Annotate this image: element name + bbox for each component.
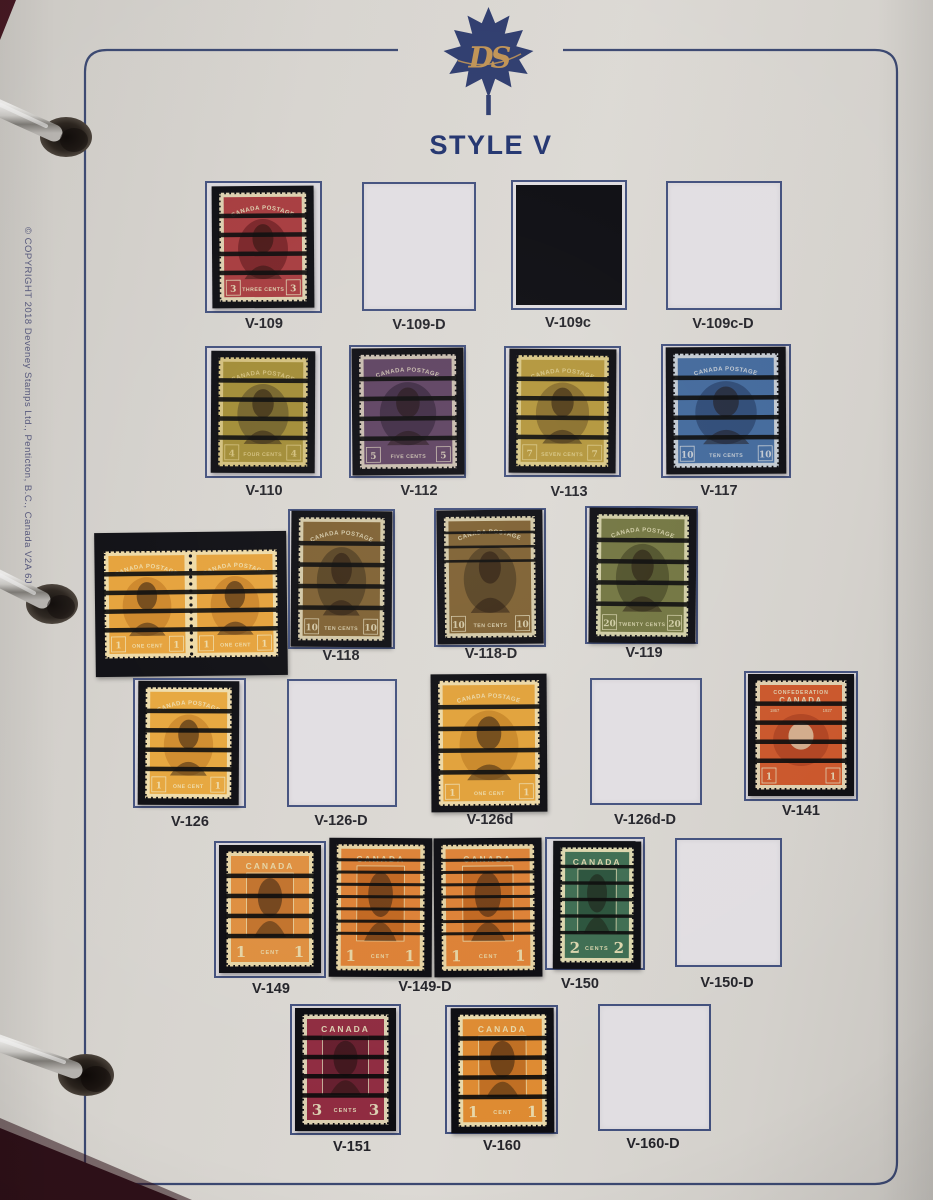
caption-V-126: V-126 (171, 814, 209, 830)
caption-V-117: V-117 (700, 483, 737, 499)
svg-text:4: 4 (291, 450, 297, 460)
svg-text:7: 7 (527, 449, 533, 459)
svg-text:5: 5 (370, 452, 376, 462)
stamp-mount-V-150: CANADA22CENTS (553, 841, 641, 969)
caption-V-126-D: V-126-D (314, 813, 367, 829)
stamp-V-150: CANADA22CENTS (559, 846, 635, 964)
svg-text:ONE CENT: ONE CENT (220, 642, 251, 648)
stamp-mount-V-109: CANADA POSTAGE33THREE CENTS (212, 186, 315, 309)
stamp-coil-pair: CANADA POSTAGE11ONE CENTCANADA POSTAGE11… (102, 548, 279, 660)
logo-monogram: DS (468, 40, 511, 74)
caption-V-126d: V-126d (467, 812, 514, 828)
stamp-mount-V-126d: CANADA POSTAGE11ONE CENT (431, 674, 548, 813)
svg-text:CENTS: CENTS (585, 946, 609, 952)
stamp-V-126d: CANADA POSTAGE11ONE CENT (437, 679, 542, 808)
stamp-mount-V-117: CANADA POSTAGE1010TEN CENTS (666, 347, 787, 475)
printed-box-V-109-D (362, 182, 476, 311)
svg-text:1: 1 (515, 947, 526, 965)
svg-text:1: 1 (215, 782, 221, 792)
stamp-V-149: CANADA11CENT (225, 850, 315, 968)
svg-text:1: 1 (449, 789, 455, 799)
stamp-V-160: CANADA11CENT (457, 1013, 549, 1128)
stamp-mount-V-149-D-right: CANADA11CENT (434, 838, 543, 978)
svg-text:1: 1 (156, 781, 162, 791)
svg-text:TEN CENTS: TEN CENTS (474, 623, 508, 629)
stamp-mount-V-119: CANADA POSTAGE2020TWENTY CENTS (588, 508, 696, 644)
printed-box-V-150-D (675, 838, 782, 967)
svg-text:10: 10 (681, 451, 694, 461)
svg-text:10: 10 (452, 621, 465, 631)
svg-text:2: 2 (570, 939, 581, 957)
svg-text:TEN CENTS: TEN CENTS (709, 453, 743, 459)
stamp-V-149-D-right: CANADA11CENT (440, 843, 537, 973)
svg-text:ONE CENT: ONE CENT (132, 643, 163, 649)
svg-text:3: 3 (230, 285, 236, 295)
svg-text:FIVE CENTS: FIVE CENTS (391, 454, 427, 460)
svg-text:10: 10 (516, 620, 529, 630)
svg-text:20: 20 (668, 620, 681, 630)
svg-text:10: 10 (305, 623, 318, 633)
svg-text:1: 1 (523, 788, 529, 798)
black-box-V-109c (511, 180, 627, 310)
svg-text:ONE CENT: ONE CENT (474, 791, 505, 797)
svg-text:CANADA: CANADA (246, 861, 295, 871)
svg-text:FOUR CENTS: FOUR CENTS (243, 452, 282, 458)
caption-V-109: V-109 (245, 316, 283, 332)
svg-text:1: 1 (203, 640, 209, 650)
stamp-mount-V-118-D: CANADA POSTAGE1010TEN CENTS (436, 509, 543, 644)
svg-text:1: 1 (294, 943, 304, 961)
caption-V-149-D: V-149-D (398, 979, 451, 995)
caption-V-149: V-149 (252, 981, 290, 997)
caption-V-150: V-150 (561, 976, 599, 992)
stamp-V-117: CANADA POSTAGE1010TEN CENTS (672, 352, 781, 470)
printed-box-V-109c-D (666, 181, 782, 310)
stamp-V-112: CANADA POSTAGE55FIVE CENTS (357, 353, 458, 471)
svg-text:7: 7 (592, 450, 598, 460)
caption-V-112: V-112 (400, 483, 437, 499)
stamp-V-119: CANADA POSTAGE2020TWENTY CENTS (594, 513, 690, 639)
stamp-mount-V-112: CANADA POSTAGE55FIVE CENTS (351, 348, 464, 476)
stamp-V-118: CANADA POSTAGE1010TEN CENTS (297, 516, 387, 643)
maple-leaf-stem (486, 95, 491, 115)
caption-V-160: V-160 (483, 1138, 521, 1154)
stamp-mount-V-151: CANADA33CENTS (295, 1008, 396, 1131)
stamp-V-109: CANADA POSTAGE33THREE CENTS (218, 191, 309, 304)
svg-text:1: 1 (766, 773, 772, 783)
stamp-mount-V-113: CANADA POSTAGE77SEVEN CENTS (509, 349, 617, 474)
stamp-V-151: CANADA33CENTS (301, 1013, 390, 1126)
stamp-V-149-D-left: CANADA11CENT (335, 843, 427, 972)
svg-text:4: 4 (229, 449, 235, 459)
printed-box-V-126-D (287, 679, 397, 807)
svg-text:20: 20 (603, 619, 616, 629)
caption-V-119: V-119 (625, 645, 662, 661)
caption-V-150-D: V-150-D (700, 975, 753, 991)
svg-text:TWENTY CENTS: TWENTY CENTS (619, 622, 666, 628)
stamp-V-126: CANADA POSTAGE11ONE CENT (144, 686, 234, 800)
svg-text:1: 1 (404, 947, 415, 965)
stamp-mount-V-141: CONFEDERATIONCANADA1867192711 (748, 674, 854, 796)
caption-V-151: V-151 (333, 1139, 371, 1155)
svg-text:10: 10 (364, 624, 377, 634)
svg-text:3: 3 (312, 1101, 322, 1119)
svg-text:THREE CENTS: THREE CENTS (242, 287, 284, 293)
svg-text:1: 1 (115, 641, 121, 651)
stamp-V-141: CONFEDERATIONCANADA1867192711 (754, 679, 848, 791)
caption-V-109c: V-109c (545, 315, 591, 331)
svg-text:5: 5 (440, 451, 446, 461)
svg-text:1: 1 (468, 1103, 479, 1121)
page-title: STYLE V (49, 130, 933, 161)
svg-text:CENTS: CENTS (334, 1108, 358, 1114)
stamp-V-113: CANADA POSTAGE77SEVEN CENTS (515, 354, 611, 469)
stamp-V-118-D: CANADA POSTAGE1010TEN CENTS (442, 515, 537, 640)
printed-box-V-160-D (598, 1004, 711, 1131)
stamp-mount-V-149: CANADA11CENT (219, 845, 321, 973)
svg-text:CANADA: CANADA (321, 1024, 370, 1034)
caption-V-160-D: V-160-D (626, 1136, 679, 1152)
svg-text:1: 1 (527, 1103, 538, 1121)
svg-text:3: 3 (290, 284, 296, 294)
svg-text:1: 1 (261, 640, 267, 650)
stamp-V-110: CANADA POSTAGE44FOUR CENTS (217, 356, 310, 468)
svg-text:CANADA: CANADA (478, 1024, 527, 1034)
svg-text:CENT: CENT (371, 954, 390, 960)
svg-text:1: 1 (830, 773, 836, 783)
svg-text:CENT: CENT (479, 954, 498, 960)
svg-text:3: 3 (369, 1101, 379, 1119)
svg-text:CENT: CENT (493, 1110, 512, 1116)
stamp-mount-V-160: CANADA11CENT (451, 1008, 555, 1134)
svg-text:2: 2 (614, 939, 625, 957)
svg-text:1: 1 (173, 641, 179, 651)
svg-text:ONE CENT: ONE CENT (173, 784, 204, 790)
caption-V-109-D: V-109-D (392, 317, 445, 333)
caption-V-113: V-113 (550, 484, 587, 500)
caption-V-141: V-141 (782, 803, 820, 819)
caption-V-118: V-118 (322, 648, 359, 664)
svg-text:1927: 1927 (823, 708, 833, 713)
stamp-mount-V-110: CANADA POSTAGE44FOUR CENTS (211, 351, 316, 474)
stamp-mount-V-126: CANADA POSTAGE11ONE CENT (138, 681, 240, 806)
caption-V-126d-D: V-126d-D (614, 812, 676, 828)
svg-text:CENT: CENT (261, 950, 280, 956)
stamp-grid: CANADA POSTAGE33THREE CENTSCANADA POSTAG… (0, 0, 933, 1200)
svg-text:1: 1 (345, 947, 356, 965)
stamp-mount-V-149-D-left: CANADA11CENT (329, 838, 433, 978)
caption-V-109c-D: V-109c-D (692, 316, 753, 332)
copyright-notice: © COPYRIGHT 2018 Deveney Stamps Ltd., Pe… (19, 227, 33, 567)
caption-V-118-D: V-118-D (465, 646, 517, 662)
svg-text:1867: 1867 (770, 708, 780, 713)
publisher-logo: DS (440, 7, 537, 117)
svg-text:10: 10 (759, 450, 772, 460)
svg-text:1: 1 (236, 943, 246, 961)
svg-text:TEN CENTS: TEN CENTS (324, 626, 358, 632)
album-page-photo: CANADA POSTAGE33THREE CENTSCANADA POSTAG… (0, 0, 933, 1200)
caption-V-110: V-110 (245, 483, 282, 499)
svg-text:SEVEN CENTS: SEVEN CENTS (541, 452, 583, 458)
svg-text:1: 1 (451, 947, 462, 965)
stamp-mount-V-118: CANADA POSTAGE1010TEN CENTS (291, 511, 393, 648)
printed-box-V-126d-D (590, 678, 702, 805)
stamp-mount-coil-pair: CANADA POSTAGE11ONE CENTCANADA POSTAGE11… (94, 531, 288, 677)
